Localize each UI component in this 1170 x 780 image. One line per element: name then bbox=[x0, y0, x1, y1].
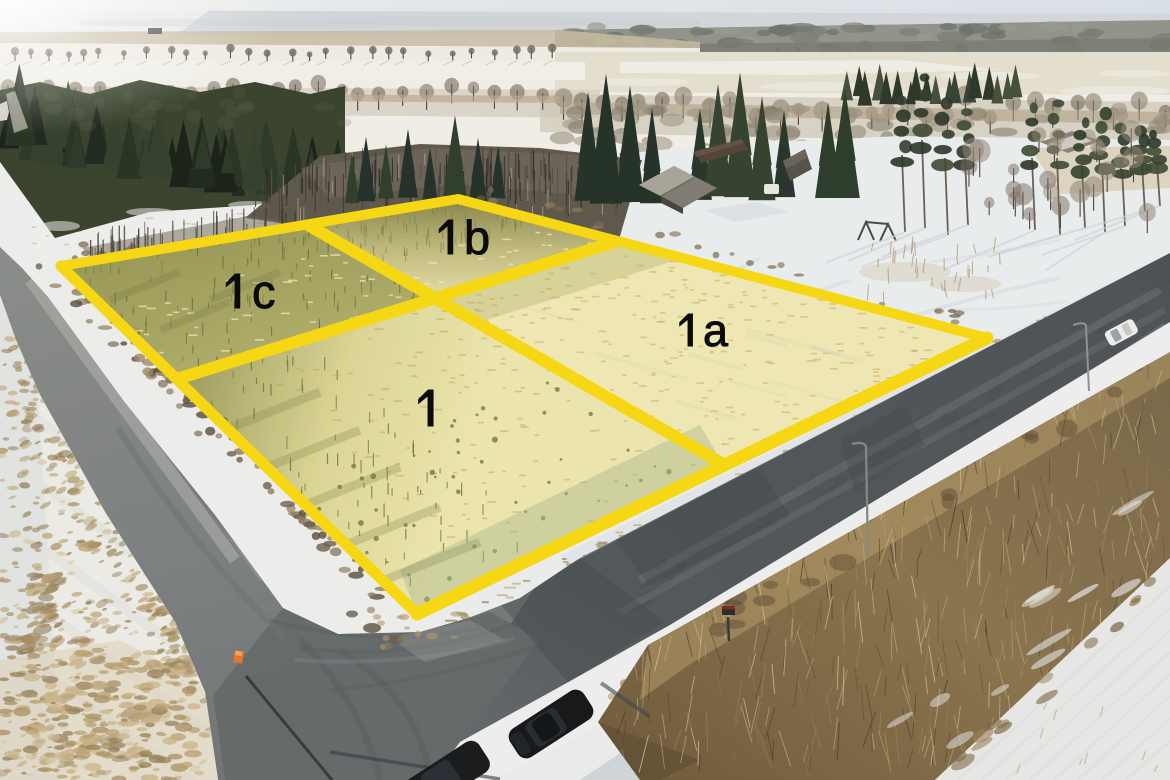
svg-text:b: b bbox=[464, 211, 490, 264]
svg-text:a: a bbox=[703, 305, 729, 356]
svg-text:c: c bbox=[252, 265, 276, 318]
